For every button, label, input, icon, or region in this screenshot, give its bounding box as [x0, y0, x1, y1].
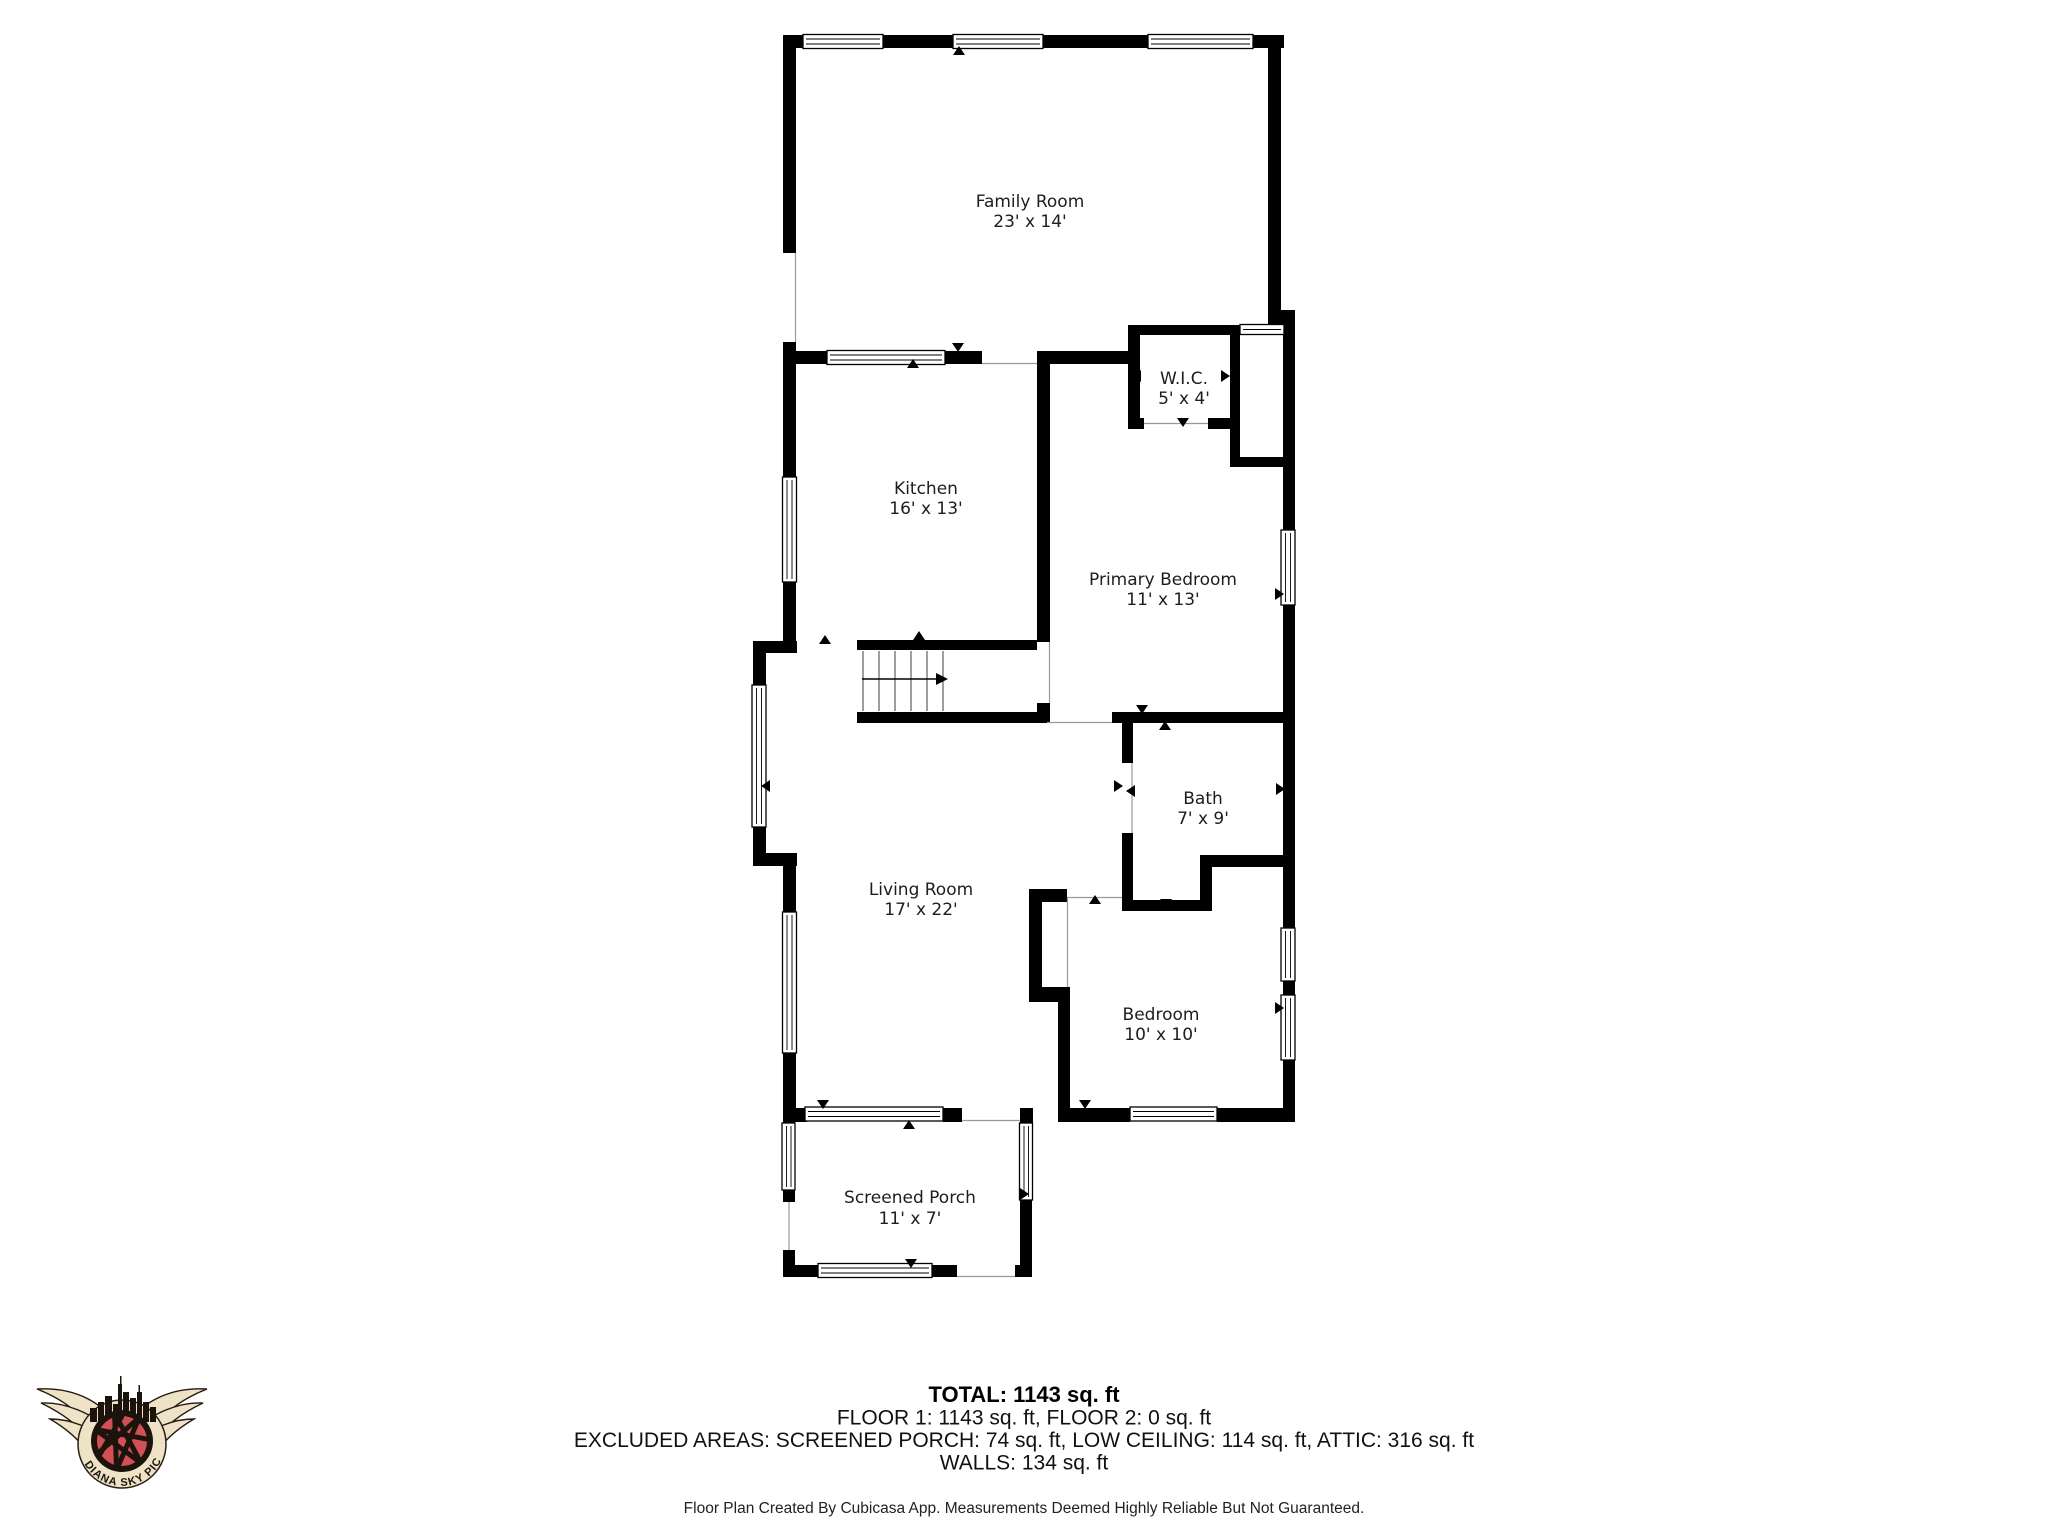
floor-plan-page: Family Room 23' x 14' Kitchen 16' x 13' … [0, 0, 2048, 1536]
window [1281, 928, 1295, 981]
room-dims-screened-porch: 11' x 7' [879, 1209, 942, 1229]
floor-plan-image: Family Room 23' x 14' Kitchen 16' x 13' … [0, 0, 2048, 1536]
room-label-living-room: Living Room [869, 880, 973, 900]
camera-aperture-icon [91, 1410, 153, 1472]
room-dims-bath: 7' x 9' [1177, 809, 1229, 829]
window [752, 685, 766, 827]
window [783, 477, 797, 582]
summary-total: TOTAL: 1143 sq. ft [928, 1382, 1120, 1407]
window [805, 1107, 943, 1121]
logo-brand-text: INDIANA SKY PICS [0, 0, 164, 1489]
stairs-direction-arrow-icon [936, 673, 948, 685]
room-dims-living-room: 17' x 22' [884, 900, 957, 920]
brand-logo: INDIANA SKY PICS [0, 0, 207, 1489]
marker-icon [1089, 895, 1101, 904]
window [818, 1264, 932, 1278]
room-label-family-room: Family Room [976, 192, 1085, 212]
window [803, 35, 883, 49]
room-dims-primary-bedroom: 11' x 13' [1126, 590, 1199, 610]
room-label-primary-bedroom: Primary Bedroom [1089, 570, 1237, 590]
summary-excluded-areas: EXCLUDED AREAS: SCREENED PORCH: 74 sq. f… [574, 1429, 1474, 1452]
window [1281, 995, 1295, 1060]
room-label-screened-porch: Screened Porch [844, 1188, 976, 1208]
summary-walls: WALLS: 134 sq. ft [940, 1452, 1109, 1475]
marker-icon [819, 635, 831, 644]
room-dims-wic: 5' x 4' [1158, 389, 1210, 409]
marker-icon [1177, 418, 1189, 427]
room-label-wic: W.I.C. [1160, 369, 1208, 389]
window [1020, 1123, 1033, 1200]
room-label-kitchen: Kitchen [894, 479, 958, 499]
window [1148, 35, 1253, 49]
opening-lines [789, 253, 1208, 1277]
marker-icon [1126, 785, 1135, 797]
staircase [862, 651, 948, 711]
window [783, 912, 797, 1053]
window [827, 351, 945, 365]
marker-icon [1114, 780, 1123, 792]
area-summary: TOTAL: 1143 sq. ft FLOOR 1: 1143 sq. ft,… [574, 1382, 1474, 1517]
room-label-bedroom: Bedroom [1123, 1005, 1200, 1025]
room-dims-kitchen: 16' x 13' [889, 499, 962, 519]
window [782, 1123, 795, 1190]
window [1130, 1107, 1217, 1121]
disclaimer-text: Floor Plan Created By Cubicasa App. Meas… [684, 1500, 1365, 1517]
marker-icon [1221, 370, 1230, 382]
marker-icon [913, 631, 925, 640]
marker-icon [1079, 1100, 1091, 1109]
room-dims-bedroom: 10' x 10' [1124, 1025, 1197, 1045]
room-label-bath: Bath [1183, 789, 1223, 809]
room-dims-family-room: 23' x 14' [993, 212, 1066, 232]
summary-floors: FLOOR 1: 1143 sq. ft, FLOOR 2: 0 sq. ft [837, 1407, 1211, 1430]
window [953, 35, 1043, 49]
marker-icon [952, 343, 964, 352]
window [1240, 325, 1284, 335]
